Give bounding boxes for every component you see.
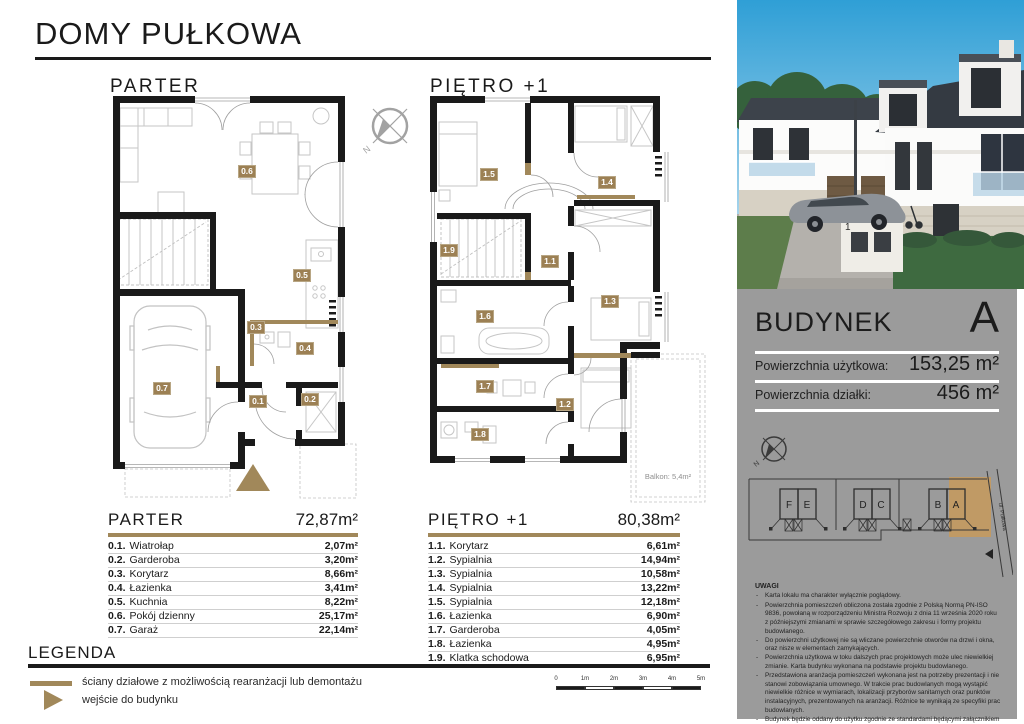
scale-tick: 2m xyxy=(610,676,618,682)
scale-tick: 0 xyxy=(554,676,557,682)
site-plan: F E D C B A N ul. Pułkowa xyxy=(741,427,1013,585)
walls xyxy=(430,96,662,463)
parter-table-total: 72,87m² xyxy=(296,510,358,530)
table-row: 1.4.Sypialnia13,22m² xyxy=(428,582,680,596)
building-letter-e: E xyxy=(804,500,811,511)
pietro-table-header: PIĘTRO +1 80,38m² xyxy=(428,510,680,537)
pietro-table-total: 80,38m² xyxy=(618,510,680,530)
street-label: ul. Pułkowa xyxy=(997,502,1007,532)
page-title: DOMY PUŁKOWA xyxy=(35,16,302,52)
legend-partition-label: ściany działowe z możliwością rearanżacj… xyxy=(82,676,362,688)
compass-north-label: N xyxy=(363,144,372,156)
uwagi-item: Powierzchnia pomieszczeń obliczona zosta… xyxy=(755,602,1001,637)
room-label-0-1: 0.1 xyxy=(249,395,267,408)
building-letter-a: A xyxy=(953,500,960,511)
table-row: 0.2.Garderoba3,20m² xyxy=(108,554,358,568)
legend-entrance-label: wejście do budynku xyxy=(82,694,178,706)
legend-divider xyxy=(28,664,710,668)
room-label-1-1: 1.1 xyxy=(541,255,559,268)
room-label-0-3: 0.3 xyxy=(247,321,265,334)
room-label-0-7: 0.7 xyxy=(153,382,171,395)
room-label-0-6: 0.6 xyxy=(238,165,256,178)
table-row: 0.6.Pokój dzienny25,17m² xyxy=(108,610,358,624)
door-arcs xyxy=(195,103,338,439)
building-letter-f: F xyxy=(786,500,792,511)
uwagi-title: UWAGI xyxy=(755,582,1001,591)
chimney xyxy=(999,40,1014,58)
table-row: 1.2.Sypialnia14,94m² xyxy=(428,554,680,568)
scale-tick: 1m xyxy=(581,676,589,682)
divider xyxy=(755,409,999,412)
table-row: 1.8.Łazienka4,95m² xyxy=(428,638,680,652)
north-compass-icon: N xyxy=(363,101,417,159)
uwagi-item: Powierzchnia użytkowa w toku dalszych pr… xyxy=(755,654,1001,671)
table-row: 1.7.Garderoba4,05m² xyxy=(428,624,680,638)
usable-area-label: Powierzchnia użytkowa: xyxy=(755,359,888,373)
scale-tick: 5m xyxy=(697,676,705,682)
plot-area-value: 456 m² xyxy=(937,382,999,405)
scale-segment xyxy=(614,686,643,690)
table-row: 0.3.Korytarz8,66m² xyxy=(108,568,358,582)
scale-segment xyxy=(643,686,672,690)
room-label-1-7: 1.7 xyxy=(476,380,494,393)
table-row: 1.5.Sypialnia12,18m² xyxy=(428,596,680,610)
table-row: 1.3.Sypialnia10,58m² xyxy=(428,568,680,582)
partition-walls xyxy=(216,320,338,382)
pietro-floorplan: 1.1 1.2 1.3 1.4 1.5 1.6 1.7 1.8 1.9 Balk… xyxy=(425,92,710,512)
uwagi-item: Do powierzchni użytkowej nie są wliczane… xyxy=(755,637,1001,654)
balcony-glass xyxy=(973,172,1024,196)
driveway-hatches xyxy=(771,519,974,531)
building-letter-d: D xyxy=(859,500,866,511)
room-label-1-5: 1.5 xyxy=(480,168,498,181)
house-render: 1 xyxy=(737,0,1024,289)
scale-segment xyxy=(585,686,614,690)
room-label-0-5: 0.5 xyxy=(293,269,311,282)
site-compass-icon: N xyxy=(753,437,786,469)
building-card-title: BUDYNEK xyxy=(755,307,893,338)
table-row: 1.1.Korytarz6,61m² xyxy=(428,540,680,554)
pietro-floorplan-drawing xyxy=(425,92,710,512)
room-label-1-6: 1.6 xyxy=(476,310,494,323)
parter-floorplan-drawing xyxy=(100,92,360,510)
balcony-area-label: Balkon: 5,4m² xyxy=(631,472,705,481)
table-row: 0.7.Garaż22,14m² xyxy=(108,624,358,638)
car-icon xyxy=(130,306,210,448)
room-label-1-8: 1.8 xyxy=(471,428,489,441)
scale-segment xyxy=(556,686,585,690)
building-letter-c: C xyxy=(877,500,884,511)
house-number-sign: 1 xyxy=(845,222,851,233)
property-card: DOMY PUŁKOWA PARTER PIĘTRO +1 N xyxy=(0,0,1024,724)
uwagi-notes: UWAGI Karta lokalu ma charakter wyłączni… xyxy=(755,582,1001,724)
legend-title: LEGENDA xyxy=(28,643,116,663)
hedge xyxy=(893,230,1024,289)
table-row: 0.1.Wiatrołap2,07m² xyxy=(108,540,358,554)
building-letter: A xyxy=(970,293,999,343)
uwagi-item: Przedstawiona aranżacja pomieszczeń wyko… xyxy=(755,672,1001,715)
usable-area-value: 153,25 m² xyxy=(909,353,999,376)
room-label-0-4: 0.4 xyxy=(296,342,314,355)
stairs xyxy=(118,219,208,285)
room-label-0-2: 0.2 xyxy=(301,393,319,406)
parter-floorplan: 0.1 0.2 0.3 0.4 0.5 0.6 0.7 xyxy=(100,92,360,510)
plot-area-label: Powierzchnia działki: xyxy=(755,388,871,402)
parter-table-title: PARTER xyxy=(108,510,184,530)
scale-tick: 4m xyxy=(668,676,676,682)
header-divider xyxy=(35,57,711,60)
room-label-1-9: 1.9 xyxy=(440,244,458,257)
uwagi-item: Karta lokalu ma charakter wyłącznie pogl… xyxy=(755,592,1001,601)
building-letter-b: B xyxy=(935,500,942,511)
table-row: 0.4.Łazienka3,41m² xyxy=(108,582,358,596)
parter-area-table: PARTER 72,87m² 0.1.Wiatrołap2,07m² 0.2.G… xyxy=(108,510,358,638)
uwagi-item: Budynek będzie oddany do użytku zgodnie … xyxy=(755,716,1001,724)
building-info-panel: BUDYNEK A Powierzchnia użytkowa: 153,25 … xyxy=(737,289,1017,719)
table-row: 1.6.Łazienka6,90m² xyxy=(428,610,680,624)
pietro-table-title: PIĘTRO +1 xyxy=(428,510,529,530)
parter-table-header: PARTER 72,87m² xyxy=(108,510,358,537)
scale-bar: 0 1m 2m 3m 4m 5m xyxy=(556,676,706,694)
room-label-1-4: 1.4 xyxy=(598,176,616,189)
table-row: 0.5.Kuchnia8,22m² xyxy=(108,596,358,610)
compass-north-label: N xyxy=(753,460,761,469)
room-label-1-3: 1.3 xyxy=(601,295,619,308)
scale-tick: 3m xyxy=(639,676,647,682)
legend-partition-symbol xyxy=(30,681,72,686)
pietro-area-table: PIĘTRO +1 80,38m² 1.1.Korytarz6,61m² 1.2… xyxy=(428,510,680,666)
legend-entrance-symbol xyxy=(44,690,63,710)
scale-segment xyxy=(672,686,701,690)
room-label-1-2: 1.2 xyxy=(556,398,574,411)
entrance-marker xyxy=(985,549,993,559)
